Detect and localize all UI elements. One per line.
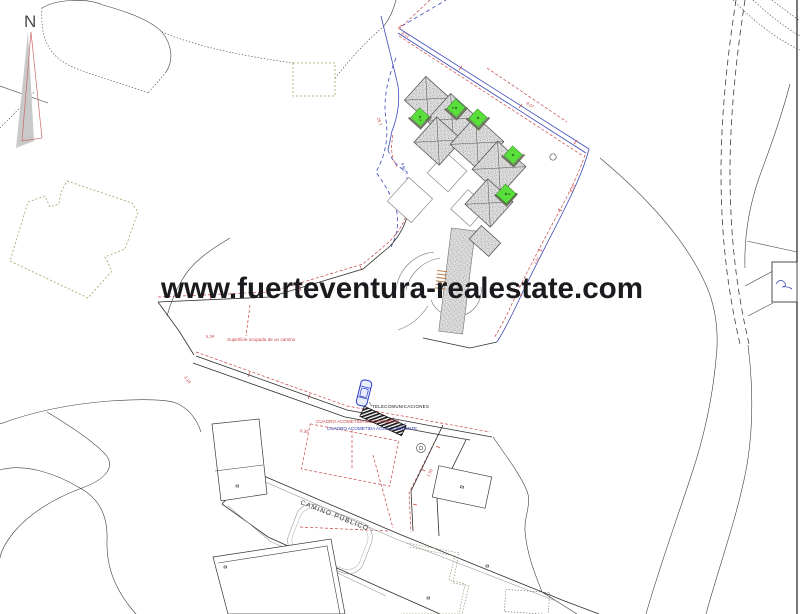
building-outline [212,419,267,501]
electric-box-label: CUADRO ACOMETIDA ELECTRICIDAD [316,419,400,424]
dimension-label: 5.34 [206,334,215,339]
occupied-path-label: Superficie ocupada de un camino [227,337,296,342]
site-plan-drawing: N [0,0,800,614]
site-plan-page: N [0,0,800,614]
north-label: N [24,12,36,31]
paper-background [0,0,800,614]
water-box-label: CUADRO ACOMETIDA AGUA CORRIENTE [327,426,417,431]
telecom-label: TELECOMUNICACIONES [372,404,429,409]
watermark-text: www.fuerteventura-realestate.com [160,272,643,305]
